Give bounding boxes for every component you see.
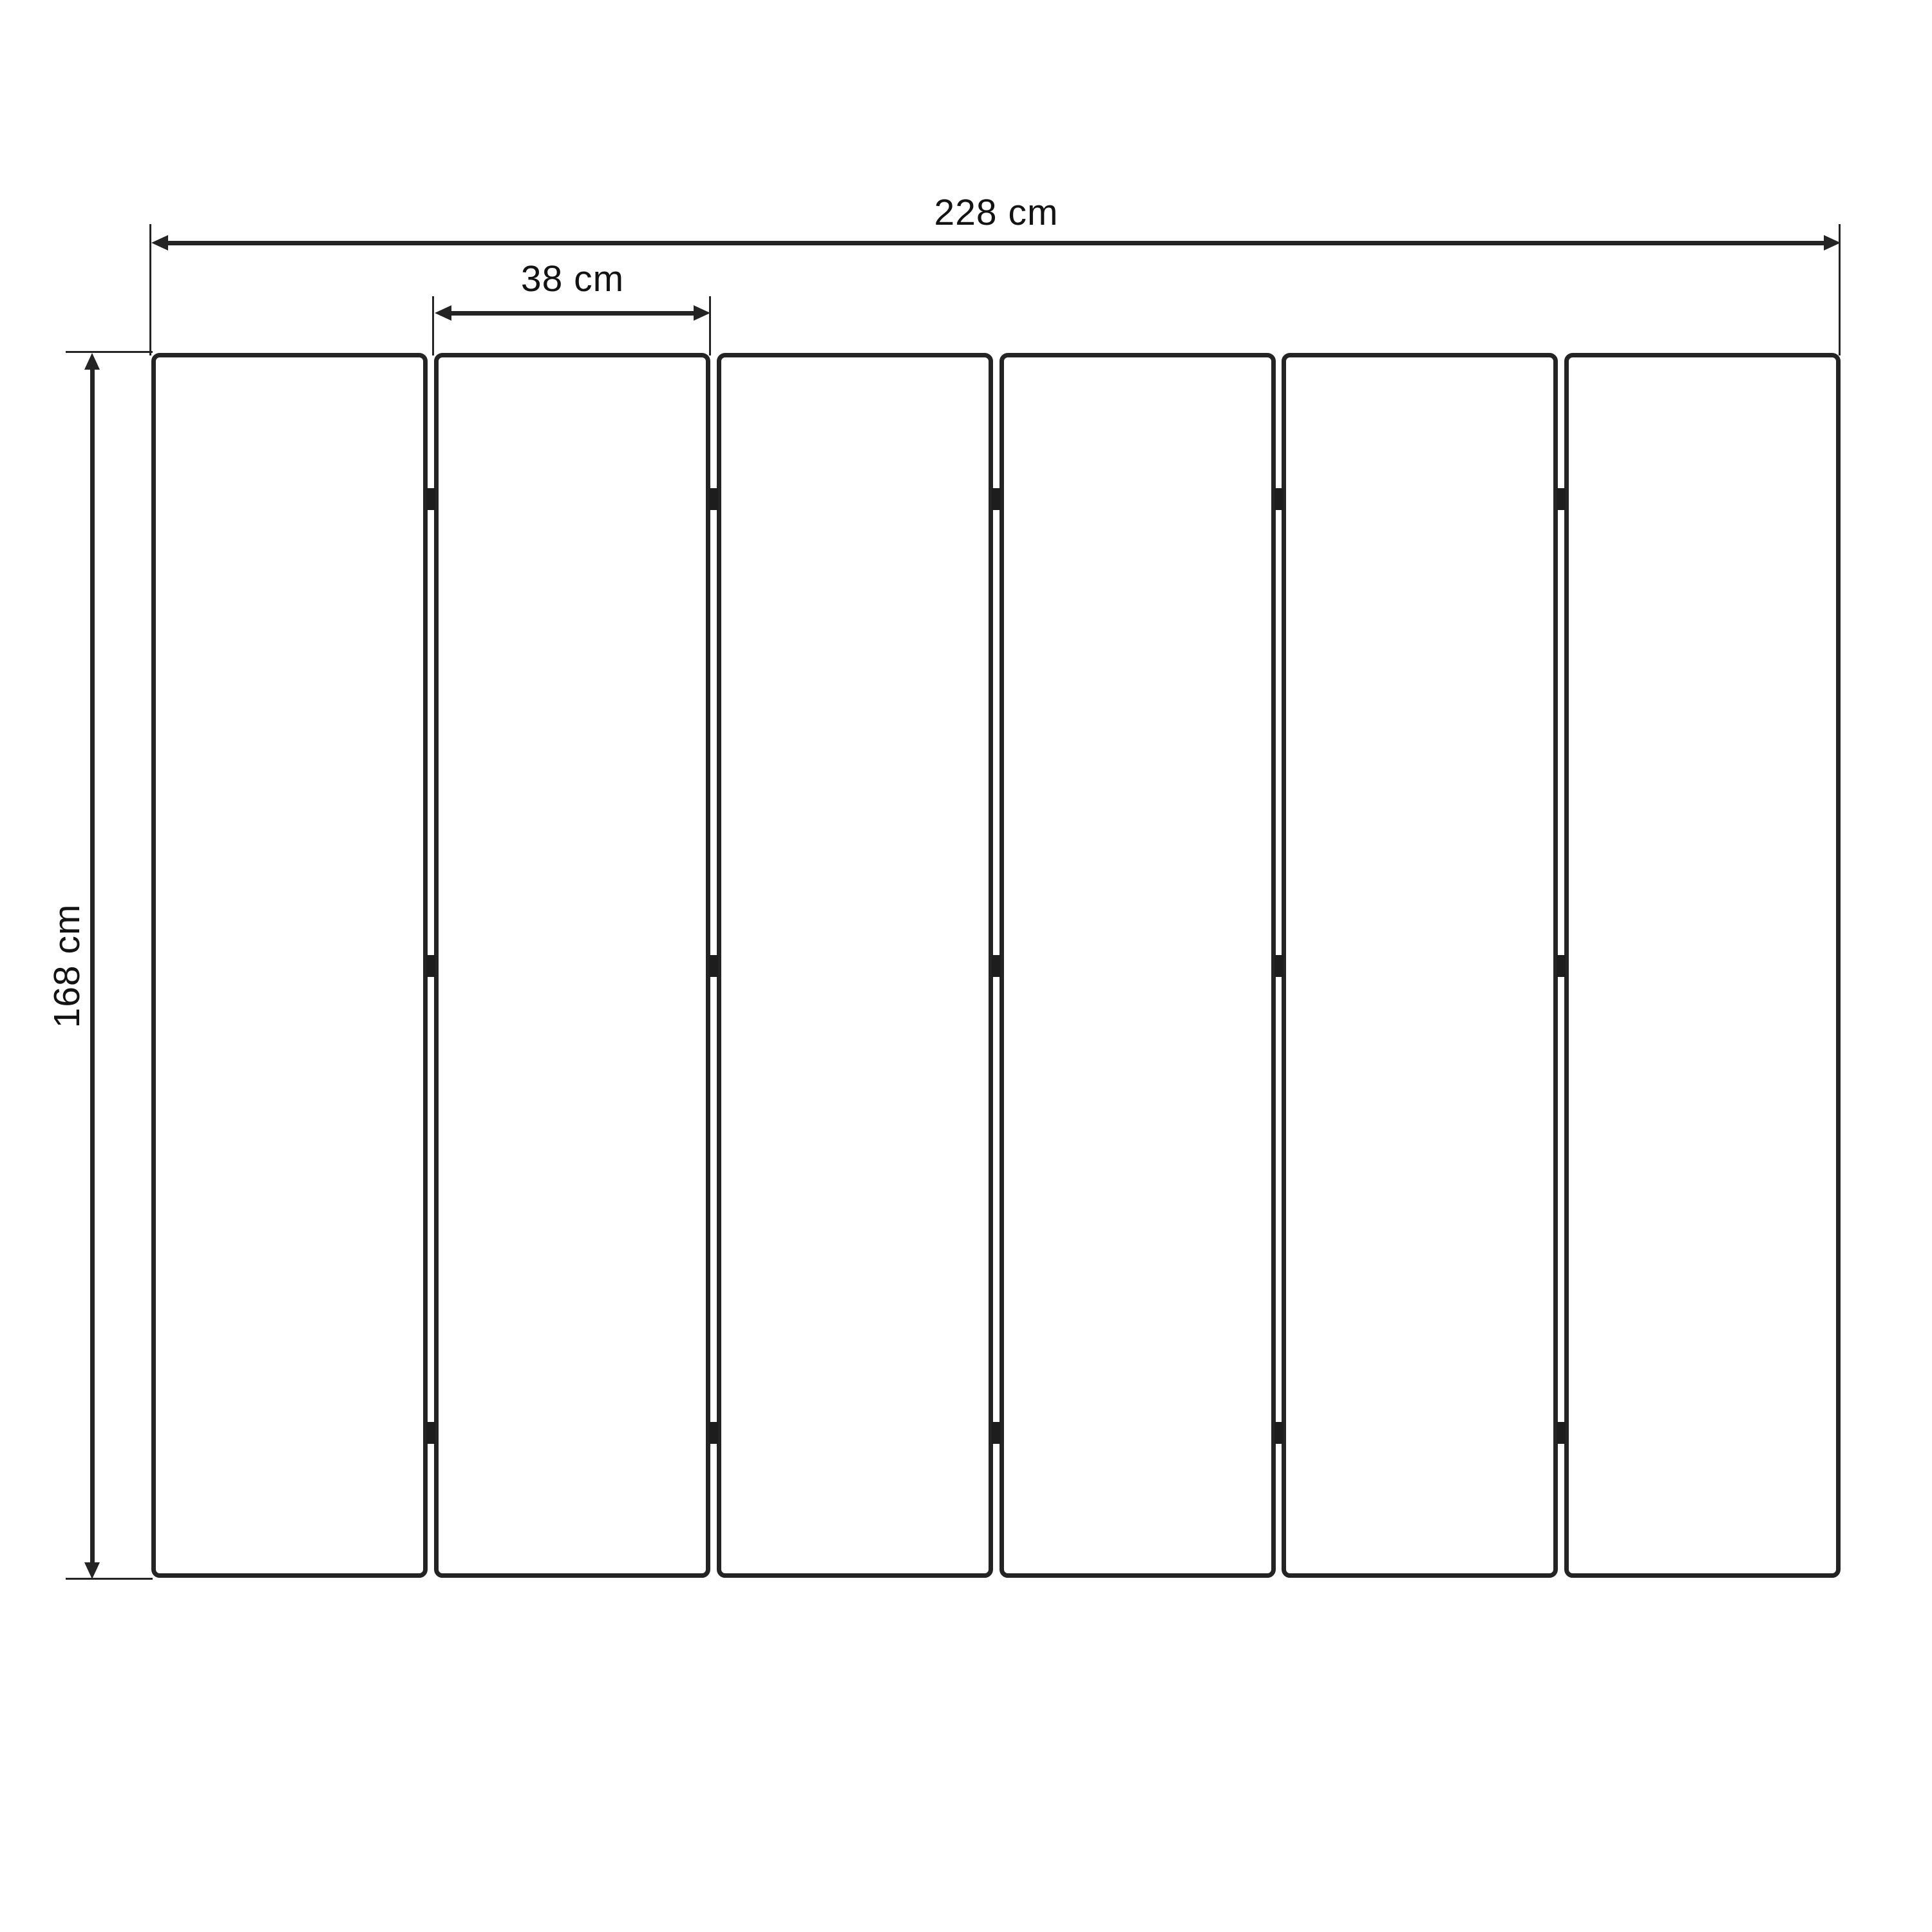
hinge-mark (992, 488, 1001, 510)
hinge-mark (426, 955, 435, 977)
hinge-mark (992, 955, 1001, 977)
panel-1 (151, 353, 428, 1578)
arrowhead-right-icon (694, 305, 710, 321)
hinge-mark (1557, 1422, 1566, 1444)
dimension-line-total-width (158, 241, 1832, 245)
panel-6 (1564, 353, 1841, 1578)
dimension-label-panel-width: 38 cm (444, 260, 701, 298)
hinge-mark (1274, 1422, 1283, 1444)
hinge-mark (709, 1422, 718, 1444)
arrowhead-left-icon (151, 235, 168, 251)
dimension-line-panel-width (440, 311, 704, 316)
arrowhead-left-icon (435, 305, 451, 321)
panel-5 (1282, 353, 1558, 1578)
extension-line-panel-left (432, 296, 434, 355)
dimension-label-height: 168 cm (48, 837, 86, 1095)
arrowhead-up-icon (84, 353, 100, 370)
hinge-mark (426, 488, 435, 510)
hinge-mark (1274, 488, 1283, 510)
extension-line-height-top (66, 351, 153, 353)
arrowhead-down-icon (84, 1562, 100, 1579)
panel-4 (999, 353, 1276, 1578)
hinge-mark (1274, 955, 1283, 977)
hinge-mark (1557, 955, 1566, 977)
panel-dimensions-diagram: 228 cm 38 cm 168 cm (0, 0, 1932, 1932)
hinge-mark (709, 488, 718, 510)
hinge-mark (1557, 488, 1566, 510)
extension-line-height-bottom (66, 1578, 153, 1580)
panel-3 (717, 353, 993, 1578)
hinge-mark (426, 1422, 435, 1444)
dimension-line-height (90, 359, 95, 1573)
arrowhead-right-icon (1824, 235, 1841, 251)
panel-2 (434, 353, 710, 1578)
hinge-mark (992, 1422, 1001, 1444)
dimension-label-total-width: 228 cm (867, 193, 1125, 232)
hinge-mark (709, 955, 718, 977)
